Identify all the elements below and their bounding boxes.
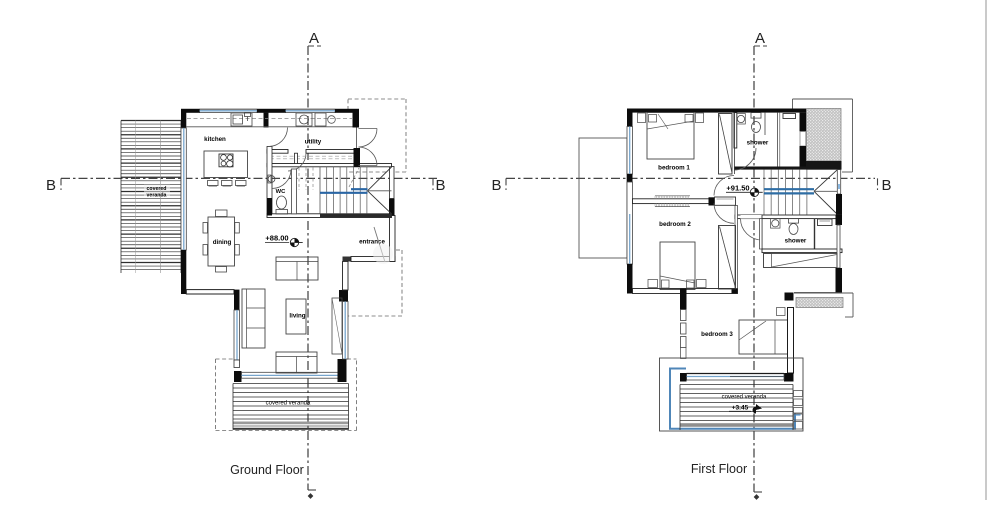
svg-text:B: B	[435, 177, 445, 194]
svg-text:bedroom 1: bedroom 1	[658, 165, 690, 172]
svg-text:B: B	[46, 177, 56, 194]
svg-text:living: living	[289, 313, 305, 320]
svg-text:shower: shower	[785, 238, 807, 245]
svg-text:shower: shower	[747, 140, 769, 147]
svg-text:+88.00: +88.00	[265, 234, 288, 243]
svg-text:B: B	[881, 177, 891, 194]
svg-text:kitchen: kitchen	[204, 136, 226, 143]
svg-text:WC: WC	[276, 189, 286, 195]
svg-text:covered veranda: covered veranda	[266, 401, 311, 407]
svg-text:dining: dining	[213, 239, 232, 246]
svg-text:bedroom 3: bedroom 3	[701, 331, 733, 338]
svg-text:B: B	[491, 177, 501, 194]
svg-text:+3.45: +3.45	[732, 405, 749, 412]
svg-text:covered veranda: covered veranda	[722, 395, 767, 401]
svg-text:A: A	[755, 30, 765, 47]
svg-text:Ground Floor: Ground Floor	[230, 463, 304, 477]
svg-text:veranda: veranda	[147, 193, 167, 199]
svg-text:First Floor: First Floor	[691, 462, 747, 476]
svg-text:utility: utility	[305, 139, 322, 146]
svg-text:A: A	[309, 30, 319, 47]
svg-text:covered: covered	[147, 186, 167, 192]
svg-text:+91.50: +91.50	[726, 184, 749, 193]
svg-text:bedroom 2: bedroom 2	[659, 221, 691, 228]
